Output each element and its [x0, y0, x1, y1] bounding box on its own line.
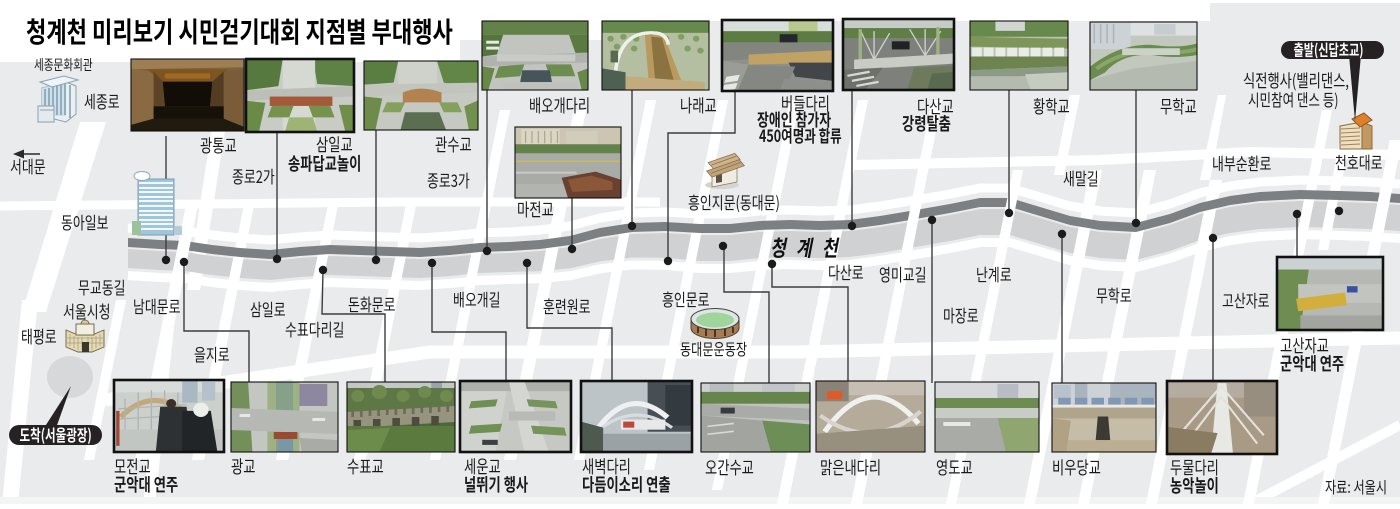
svg-text:배오개길: 배오개길 — [453, 287, 500, 312]
svg-text:동아일보: 동아일보 — [61, 210, 109, 235]
svg-text:무학교: 무학교 — [1160, 94, 1197, 119]
svg-text:서울시청: 서울시청 — [63, 299, 110, 324]
svg-text:군악대 연주: 군악대 연주 — [114, 472, 178, 497]
svg-text:강령탈춤: 강령탈춤 — [902, 111, 951, 136]
svg-text:돈화문로: 돈화문로 — [348, 292, 396, 317]
svg-text:종로3가: 종로3가 — [427, 168, 470, 193]
svg-text:자료: 서울시: 자료: 서울시 — [1325, 476, 1387, 499]
svg-text:청계천 미리보기 시민걷기대회 지점별 부대행사: 청계천 미리보기 시민걷기대회 지점별 부대행사 — [26, 11, 453, 51]
svg-text:천호대로: 천호대로 — [1335, 150, 1383, 175]
svg-text:을지로: 을지로 — [194, 342, 230, 367]
svg-text:다산로: 다산로 — [828, 260, 864, 285]
svg-text:비우당교: 비우당교 — [1052, 455, 1101, 480]
svg-text:450여명과 합류: 450여명과 합류 — [759, 124, 842, 148]
svg-text:청계천: 청계천 — [770, 230, 848, 262]
svg-text:군악대 연주: 군악대 연주 — [1280, 351, 1344, 376]
svg-text:흥인지문(동대문): 흥인지문(동대문) — [688, 190, 780, 215]
svg-text:수표교: 수표교 — [347, 454, 384, 479]
svg-text:영미교길: 영미교길 — [879, 262, 926, 287]
svg-text:맑은내다리: 맑은내다리 — [820, 455, 881, 480]
svg-text:훈련원로: 훈련원로 — [543, 294, 591, 319]
svg-text:배오개다리: 배오개다리 — [529, 93, 590, 118]
svg-text:광교: 광교 — [231, 454, 255, 479]
svg-text:세종문화회관: 세종문화회관 — [34, 54, 93, 74]
svg-text:흥인문로: 흥인문로 — [662, 287, 710, 312]
svg-text:농악놀이: 농악놀이 — [1170, 473, 1219, 498]
svg-text:고산자로: 고산자로 — [1222, 288, 1270, 313]
svg-text:난계로: 난계로 — [976, 262, 1012, 287]
svg-text:출발(신답초교): 출발(신답초교) — [1294, 37, 1364, 60]
svg-text:새말길: 새말길 — [1063, 166, 1099, 191]
svg-text:삼일로: 삼일로 — [250, 297, 286, 322]
svg-text:수표다리길: 수표다리길 — [285, 317, 344, 342]
svg-text:무교동길: 무교동길 — [78, 275, 125, 300]
svg-text:나래교: 나래교 — [680, 93, 717, 118]
svg-text:다듬이소리 연출: 다듬이소리 연출 — [582, 472, 671, 497]
svg-text:무학로: 무학로 — [1096, 283, 1132, 308]
svg-text:시민참여 댄스 등): 시민참여 댄스 등) — [1248, 88, 1339, 112]
svg-text:세종로: 세종로 — [84, 89, 120, 114]
svg-text:황학교: 황학교 — [1033, 94, 1070, 119]
svg-text:남대문로: 남대문로 — [133, 294, 181, 319]
svg-text:영도교: 영도교 — [936, 455, 973, 480]
svg-text:송파답교놀이: 송파답교놀이 — [288, 151, 361, 176]
svg-text:관수교: 관수교 — [435, 132, 472, 157]
svg-text:동대문운동장: 동대문운동장 — [680, 338, 747, 361]
svg-text:마전교: 마전교 — [517, 197, 554, 222]
svg-text:마장로: 마장로 — [943, 303, 979, 328]
svg-text:서대문: 서대문 — [10, 154, 46, 179]
svg-text:내부순환로: 내부순환로 — [1212, 151, 1271, 176]
svg-text:오간수교: 오간수교 — [705, 455, 754, 480]
svg-text:종로2가: 종로2가 — [232, 164, 275, 189]
svg-text:광통교: 광통교 — [200, 133, 237, 158]
svg-text:널뛰기 행사: 널뛰기 행사 — [464, 472, 528, 497]
svg-text:도착(서울광장): 도착(서울광장) — [20, 424, 92, 447]
svg-text:태평로: 태평로 — [21, 324, 57, 349]
